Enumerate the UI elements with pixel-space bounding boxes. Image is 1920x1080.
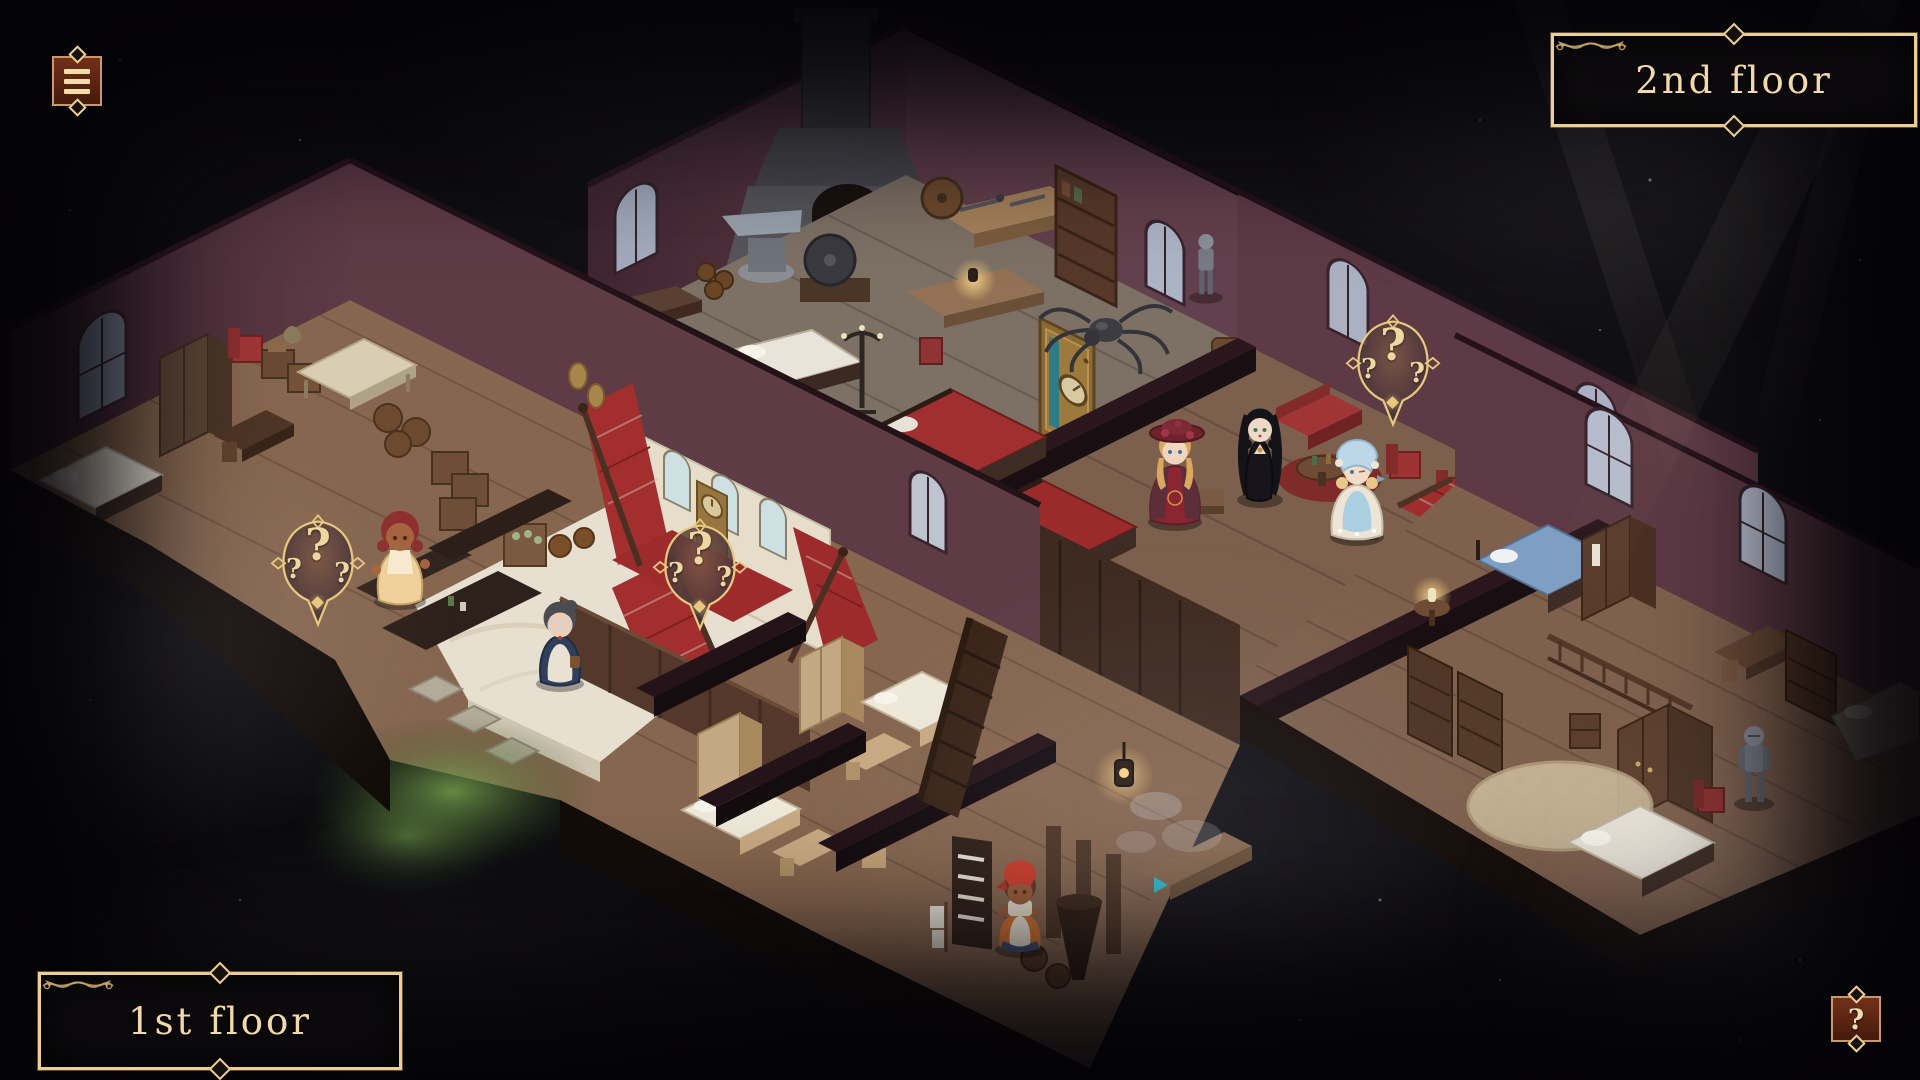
drying-racks [952,836,992,950]
flourish-right-icon [41,975,115,995]
hamburger-menu-icon [64,69,90,74]
living-room-marker[interactable]: ? ? ? [271,512,365,634]
floor-label-text: 2nd floor [1635,59,1833,102]
character-lady-black-dress[interactable] [1237,409,1283,509]
question-glyph: ? [305,520,331,571]
help-glyph: ? [1848,1003,1864,1036]
question-glyph: ? [286,554,302,585]
question-glyph: ? [334,558,350,589]
floor-label-text: 1st floor [128,1000,312,1043]
second-floor-lounge-marker[interactable]: ? ? ? [1346,312,1440,434]
menu-button[interactable] [52,56,102,106]
game-viewport: ? ? ? ? ? ? ? ? ? 2nd floor [0,0,1920,1080]
flourish-right-icon [1554,36,1628,56]
question-glyph: ? [1409,358,1425,389]
first-floor-label: 1st floor [38,972,402,1070]
round-shield [922,178,962,218]
white-cloth-stand [930,902,946,952]
question-glyph: ? [1361,354,1377,385]
question-glyph: ? [1380,320,1406,371]
question-glyph: ? [668,558,684,589]
question-glyph: ? [716,562,732,593]
second-floor-label: 2nd floor [1551,33,1917,127]
grand-staircase-marker[interactable]: ? ? ? [653,516,747,638]
grass-glow [298,776,518,896]
help-button[interactable]: ? [1831,996,1881,1042]
stool [1198,490,1224,514]
nightstand [1570,714,1600,748]
question-glyph: ? [687,524,713,575]
